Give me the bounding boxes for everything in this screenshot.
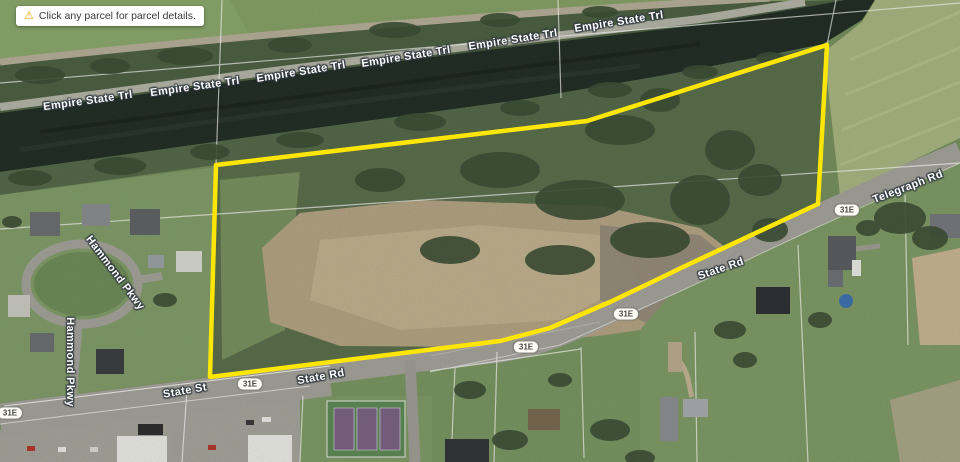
photo-texture <box>0 0 960 462</box>
tooltip-text: Click any parcel for parcel details. <box>39 10 196 22</box>
parcel-hint-tooltip: ⚠ Click any parcel for parcel details. <box>16 6 204 26</box>
warning-icon: ⚠ <box>24 11 34 22</box>
map-canvas <box>0 0 960 462</box>
satellite-map[interactable]: Empire State Trl Empire State Trl Empire… <box>0 0 960 462</box>
